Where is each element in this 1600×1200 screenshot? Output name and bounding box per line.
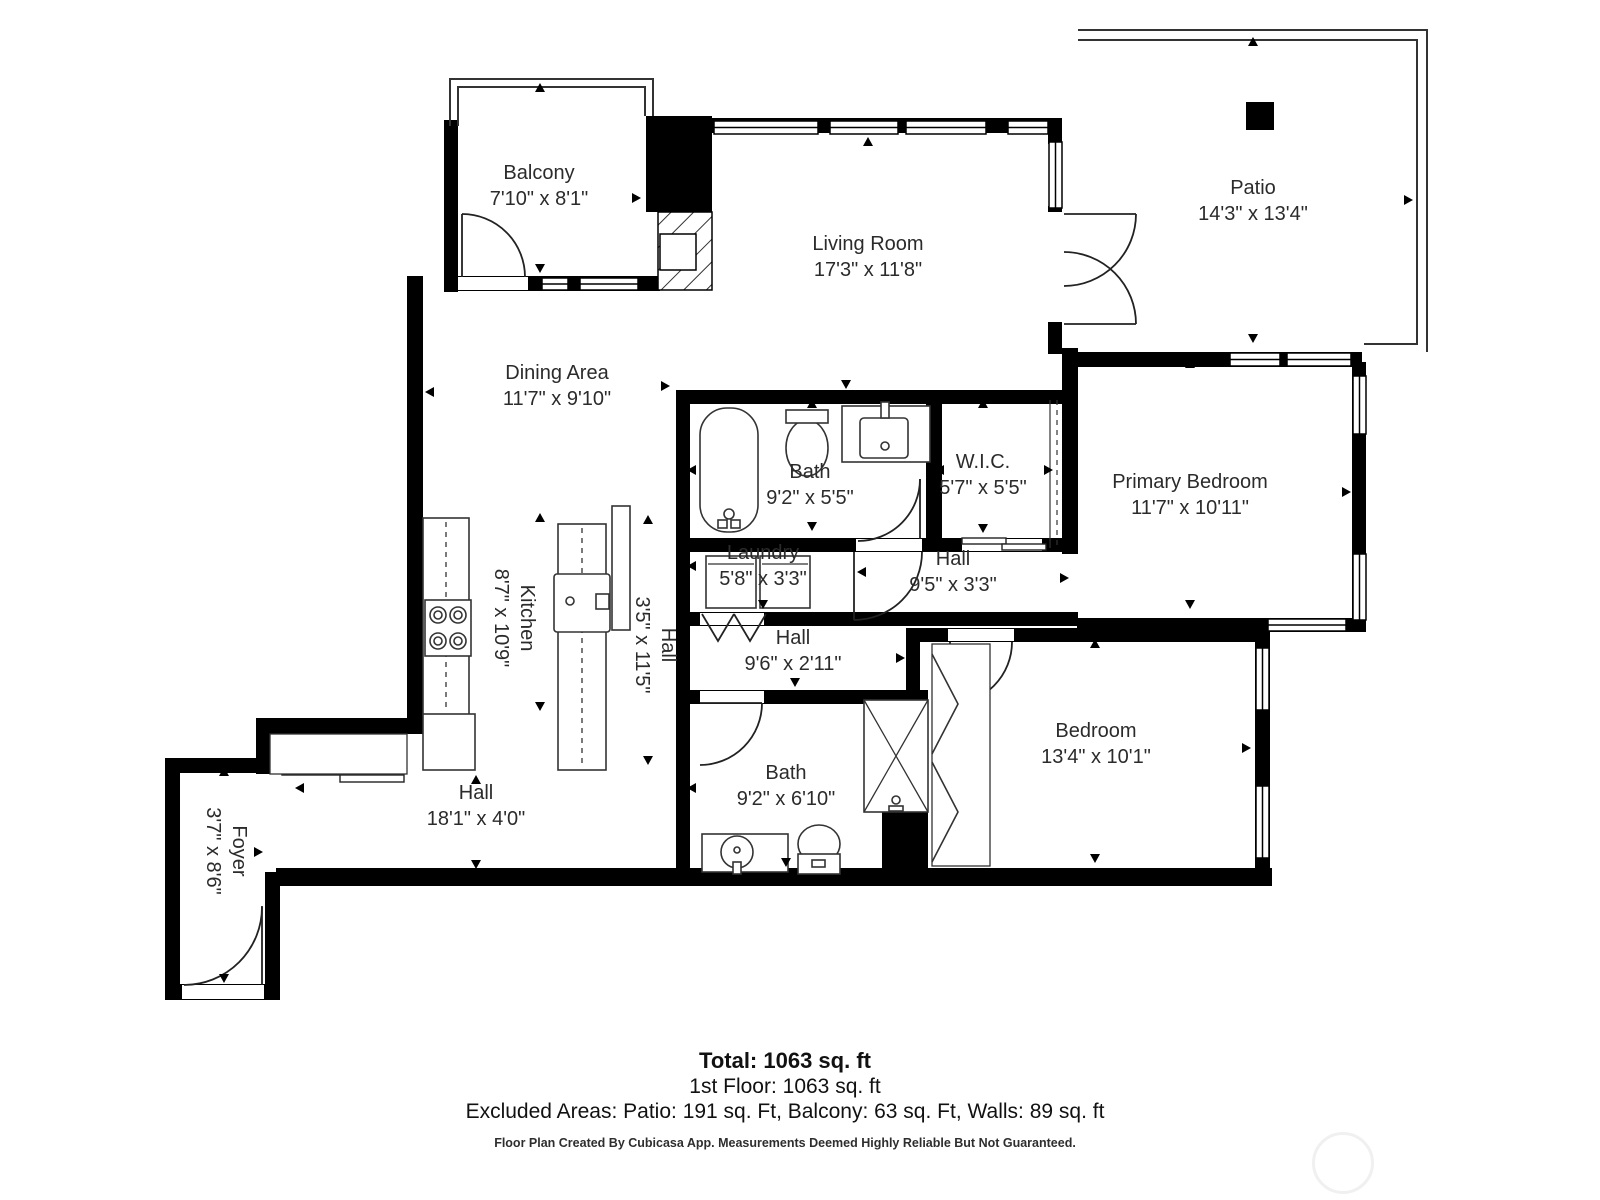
room-label-living-room: Living Room 17'3" x 11'8" (812, 231, 923, 283)
room-label-hall-2: Hall 3'5" x 11'5" (629, 596, 681, 693)
fireplace-hatch (658, 212, 712, 290)
room-label-patio: Patio 14'3" x 13'4" (1198, 175, 1308, 227)
room-label-bath-1: Bath 9'2" x 5'5" (766, 459, 853, 511)
room-label-bath-2: Bath 9'2" x 6'10" (737, 760, 836, 812)
stove (425, 600, 471, 656)
room-label-dining-area: Dining Area 11'7" x 9'10" (503, 360, 611, 412)
room-label-primary-bedroom: Primary Bedroom 11'7" x 10'11" (1112, 469, 1268, 521)
room-label-kitchen: Kitchen 8'7" x 10'9" (488, 569, 540, 668)
room-label-foyer: Foyer 3'7" x 8'6" (200, 807, 252, 894)
floorplan-page: Balcony 7'10" x 8'1" Living Room 17'3" x… (0, 0, 1600, 1200)
room-label-wic: W.I.C. 5'7" x 5'5" (939, 449, 1026, 501)
first-floor-text: 1st Floor: 1063 sq. ft (0, 1074, 1570, 1099)
watermark-circle (1312, 1132, 1374, 1194)
excluded-areas-text: Excluded Areas: Patio: 191 sq. Ft, Balco… (0, 1099, 1570, 1124)
room-label-hall-4: Hall 18'1" x 4'0" (427, 780, 526, 832)
room-label-hall-1: Hall 9'5" x 3'3" (909, 546, 996, 598)
room-label-hall-3: Hall 9'6" x 2'11" (744, 625, 841, 677)
area-summary: Total: 1063 sq. ft 1st Floor: 1063 sq. f… (0, 1048, 1570, 1124)
room-label-bedroom: Bedroom 13'4" x 10'1" (1041, 718, 1151, 770)
room-label-laundry: Laundry 5'8" x 3'3" (719, 540, 806, 592)
total-area-text: Total: 1063 sq. ft (0, 1048, 1570, 1074)
room-label-balcony: Balcony 7'10" x 8'1" (490, 160, 589, 212)
floorplan-canvas (0, 0, 1600, 1200)
